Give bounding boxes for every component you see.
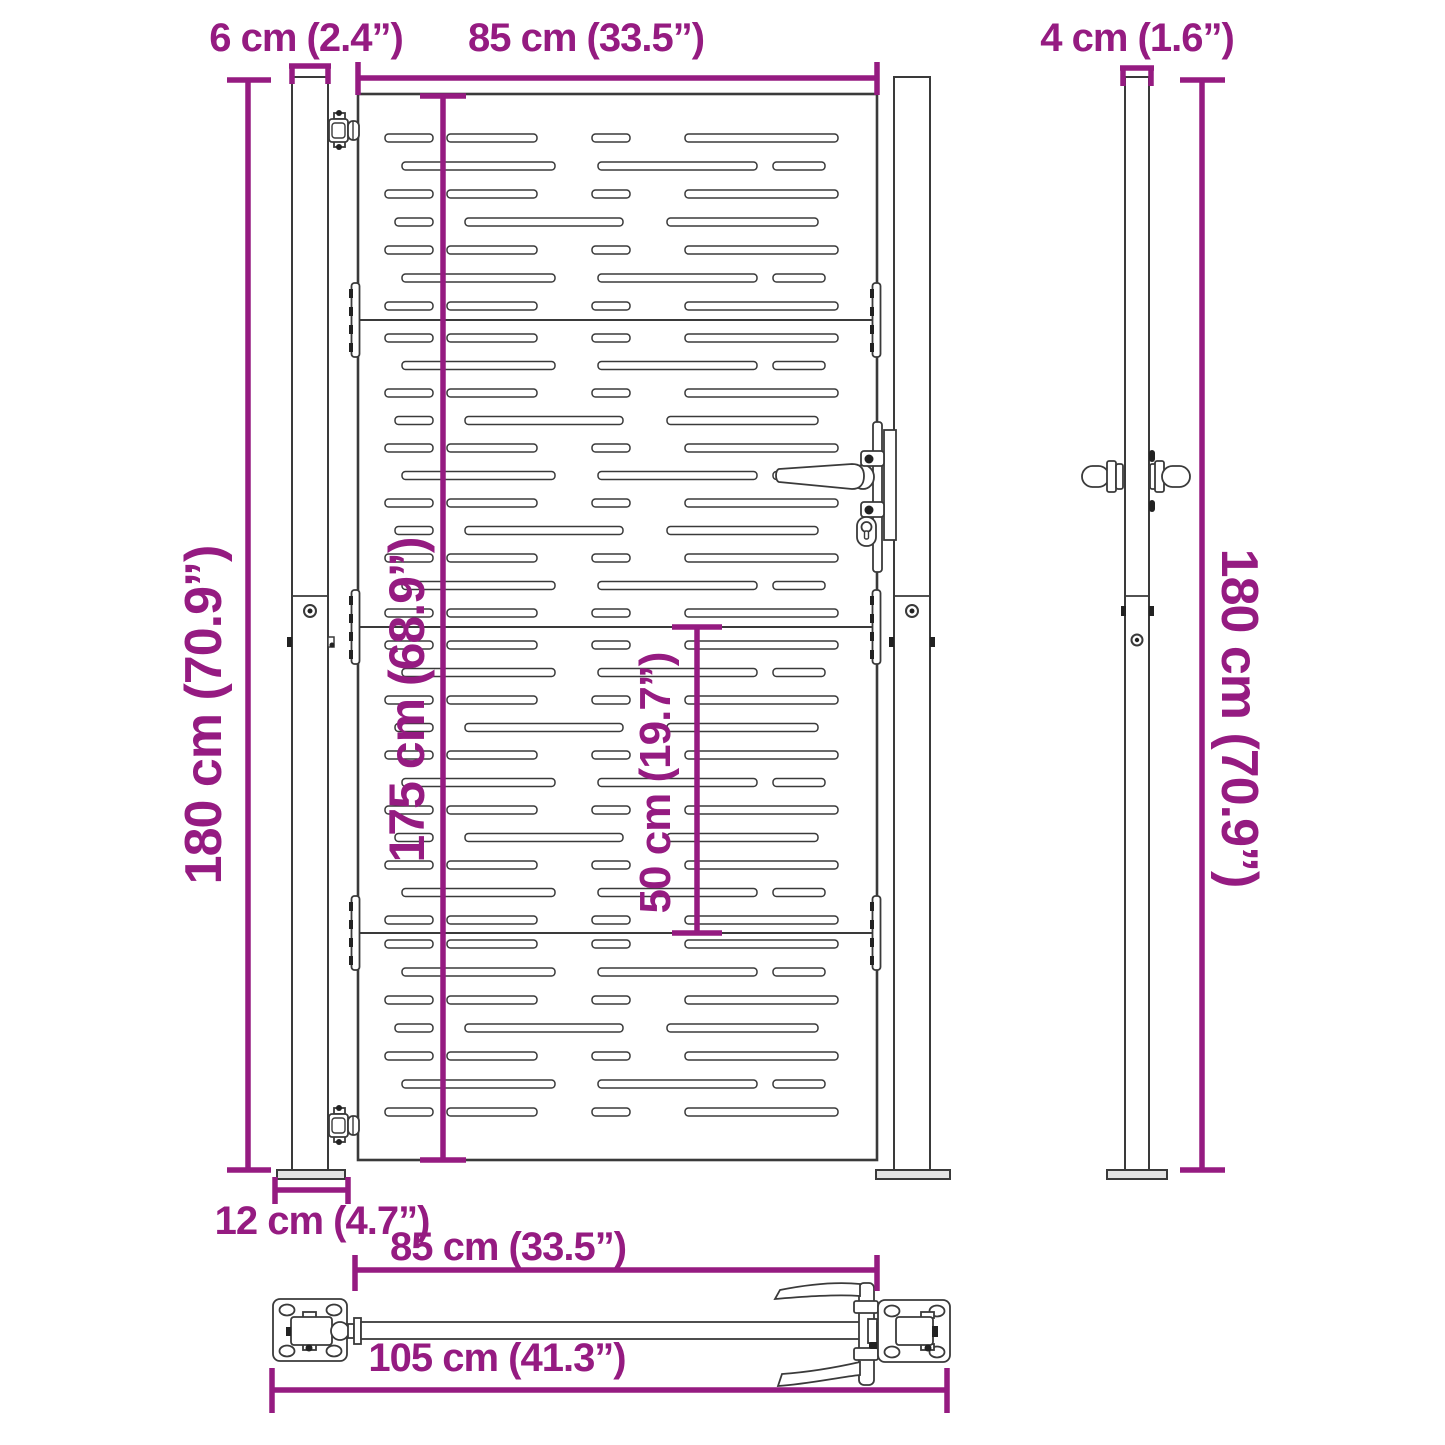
gate-slot bbox=[592, 641, 630, 649]
joint-bar-tab bbox=[870, 596, 874, 605]
side-view bbox=[1082, 77, 1190, 1179]
gate-slot bbox=[447, 334, 537, 342]
gate-slot bbox=[465, 1024, 623, 1032]
gate-slot bbox=[685, 1052, 838, 1060]
gate-slot bbox=[685, 609, 838, 617]
gate-slot bbox=[592, 940, 630, 948]
gate-slot bbox=[447, 1052, 537, 1060]
gate-slot bbox=[592, 1108, 630, 1116]
gate-slot bbox=[592, 334, 630, 342]
gate-slot bbox=[592, 246, 630, 254]
gate-slot bbox=[385, 444, 433, 452]
hinge-knuckle bbox=[331, 1322, 349, 1340]
joint-bar-tab bbox=[870, 956, 874, 965]
gate-slot bbox=[465, 834, 623, 842]
joint-bar-tab bbox=[349, 920, 353, 929]
gate-slot bbox=[447, 996, 537, 1004]
gate-slot bbox=[402, 274, 555, 282]
side-post bbox=[1125, 77, 1149, 1170]
joint-bar-tab bbox=[870, 614, 874, 623]
gate-slot bbox=[592, 806, 630, 814]
joint-bar-tab bbox=[870, 325, 874, 334]
gate-slot bbox=[598, 162, 757, 170]
top-view-right-plate bbox=[878, 1300, 950, 1362]
joint-bar-tab bbox=[870, 920, 874, 929]
gate-slot bbox=[465, 724, 623, 732]
gate-slot bbox=[685, 302, 838, 310]
gate-slot bbox=[592, 996, 630, 1004]
gate-slot bbox=[685, 246, 838, 254]
gate-slot bbox=[385, 302, 433, 310]
gate-slot bbox=[598, 274, 757, 282]
gate-slot bbox=[773, 274, 825, 282]
gate-slot bbox=[592, 916, 630, 924]
gate-slot bbox=[402, 889, 555, 897]
joint-bar-tab bbox=[349, 614, 353, 623]
joint-bar-tab bbox=[870, 650, 874, 659]
joint-bar-tab bbox=[349, 956, 353, 965]
post-width-side-label: 4 cm (1.6”) bbox=[1040, 18, 1234, 58]
gate-slot bbox=[685, 334, 838, 342]
gate-slot bbox=[685, 861, 838, 869]
gate-slot bbox=[385, 916, 433, 924]
gate-slot bbox=[685, 696, 838, 704]
gate-slot bbox=[592, 302, 630, 310]
gate-slot bbox=[667, 218, 818, 226]
gate-slot bbox=[465, 218, 623, 226]
gate-slot bbox=[598, 472, 757, 480]
gate-slot bbox=[402, 1080, 555, 1088]
joint-bar-tab bbox=[870, 289, 874, 298]
top-view-left-plate bbox=[273, 1299, 354, 1361]
dim-post-height-left bbox=[227, 80, 271, 1170]
gate-slot bbox=[685, 751, 838, 759]
joint-bar-tab bbox=[870, 902, 874, 911]
lock-bolt bbox=[1149, 500, 1155, 512]
joint-bar-tab bbox=[870, 343, 874, 352]
gate-slot bbox=[592, 696, 630, 704]
gate-slot bbox=[773, 362, 825, 370]
total-width-label: 105 cm (41.3”) bbox=[368, 1338, 625, 1378]
gate-slot bbox=[667, 1024, 818, 1032]
left-post-base-plate bbox=[277, 1170, 345, 1179]
gate-slot bbox=[447, 134, 537, 142]
gate-slot bbox=[385, 134, 433, 142]
joint-bar-tab bbox=[349, 289, 353, 298]
bottom-hinge bbox=[329, 1105, 359, 1145]
joint-bar-tab bbox=[349, 307, 353, 316]
joint-bar-tab bbox=[870, 938, 874, 947]
gate-slot bbox=[447, 641, 537, 649]
gate-slot bbox=[667, 834, 818, 842]
joint-bar-tab bbox=[349, 650, 353, 659]
joint-bar-tab bbox=[349, 325, 353, 334]
gate-slot bbox=[685, 916, 838, 924]
side-post-base-plate bbox=[1107, 1170, 1167, 1179]
gate-slot bbox=[447, 751, 537, 759]
gate-slot bbox=[598, 968, 757, 976]
gate-slot bbox=[447, 861, 537, 869]
gate-slot bbox=[592, 554, 630, 562]
gate-slot bbox=[685, 499, 838, 507]
gate-slot bbox=[447, 302, 537, 310]
gate-slot bbox=[447, 696, 537, 704]
gate-slot bbox=[685, 940, 838, 948]
post-height-right-label: 180 cm (70.9”) bbox=[1213, 549, 1265, 888]
gate-slot bbox=[773, 669, 825, 677]
gate-height-label: 175 cm (68.9”) bbox=[382, 537, 432, 862]
gate-slot bbox=[773, 889, 825, 897]
gate-slot bbox=[447, 806, 537, 814]
gate-slot bbox=[402, 968, 555, 976]
gate-slot bbox=[385, 940, 433, 948]
gate-slot bbox=[773, 779, 825, 787]
top-hinge bbox=[329, 110, 359, 150]
gate-slot bbox=[667, 527, 818, 535]
gate-slot bbox=[667, 724, 818, 732]
gate-slot bbox=[685, 389, 838, 397]
gate-slot bbox=[385, 1108, 433, 1116]
joint-bar-tab bbox=[870, 632, 874, 641]
gate-slot bbox=[395, 527, 433, 535]
gate-slot bbox=[685, 554, 838, 562]
gate-slot bbox=[592, 609, 630, 617]
gate-slot bbox=[685, 806, 838, 814]
front-view bbox=[277, 77, 950, 1179]
gate-slot bbox=[592, 1052, 630, 1060]
gate-slot bbox=[773, 968, 825, 976]
joint-bar-tab bbox=[349, 632, 353, 641]
joint-bar-tab bbox=[349, 902, 353, 911]
gate-slot bbox=[447, 499, 537, 507]
post-width-front-label: 6 cm (2.4”) bbox=[209, 18, 403, 58]
gate-slot bbox=[592, 389, 630, 397]
gate-slot bbox=[402, 362, 555, 370]
gate-slot bbox=[773, 162, 825, 170]
gate-slot bbox=[402, 162, 555, 170]
gate-slot bbox=[592, 861, 630, 869]
gate-slot bbox=[447, 190, 537, 198]
gate-slot bbox=[773, 582, 825, 590]
gate-slot bbox=[447, 444, 537, 452]
gate-slot bbox=[402, 472, 555, 480]
joint-bar-tab bbox=[349, 343, 353, 352]
gate-slot bbox=[685, 134, 838, 142]
bar-end-cap bbox=[354, 1318, 361, 1344]
gate-slot bbox=[592, 444, 630, 452]
gate-slot bbox=[598, 362, 757, 370]
gate-slot bbox=[385, 996, 433, 1004]
gate-slot bbox=[592, 751, 630, 759]
joint-bar-tab bbox=[349, 596, 353, 605]
joint-bar-tab bbox=[870, 307, 874, 316]
left-post bbox=[277, 77, 345, 1179]
gate-width-bottom-label: 85 cm (33.5”) bbox=[390, 1227, 626, 1267]
gate-slot bbox=[385, 190, 433, 198]
gate-slot bbox=[385, 1052, 433, 1060]
gate-slot bbox=[685, 996, 838, 1004]
gate-slot bbox=[592, 190, 630, 198]
lock-striker-plate bbox=[884, 430, 896, 540]
gate-slot bbox=[447, 246, 537, 254]
gate-slot bbox=[685, 190, 838, 198]
gate-slot bbox=[395, 218, 433, 226]
dim-gate-width-top bbox=[358, 62, 877, 95]
gate-slot bbox=[447, 554, 537, 562]
gate-slot bbox=[447, 1108, 537, 1116]
gate-slot bbox=[447, 940, 537, 948]
gate-slot bbox=[685, 641, 838, 649]
gate-slot bbox=[592, 499, 630, 507]
gate-slot bbox=[465, 417, 623, 425]
gate-slot bbox=[385, 246, 433, 254]
right-post bbox=[876, 77, 950, 1179]
gate-slot bbox=[385, 499, 433, 507]
gate-slot bbox=[465, 527, 623, 535]
lock-bar bbox=[873, 422, 882, 572]
gate-slot bbox=[447, 609, 537, 617]
post-height-left-label: 180 cm (70.9”) bbox=[178, 546, 230, 885]
gate-slot bbox=[598, 582, 757, 590]
gate-slot bbox=[395, 1024, 433, 1032]
gate-dimension-diagram: 6 cm (2.4”) 85 cm (33.5”) 4 cm (1.6”) 18… bbox=[0, 0, 1445, 1445]
gate-slot bbox=[385, 334, 433, 342]
gate-slot bbox=[773, 1080, 825, 1088]
gate-slot bbox=[592, 134, 630, 142]
joint-bar-tab bbox=[349, 938, 353, 947]
gate-slot bbox=[667, 417, 818, 425]
panel-height-label: 50 cm (19.7”) bbox=[634, 653, 678, 914]
gate-width-top-label: 85 cm (33.5”) bbox=[468, 18, 704, 58]
gate-slot bbox=[685, 444, 838, 452]
gate-slot bbox=[447, 916, 537, 924]
lock-bolt bbox=[1149, 450, 1155, 462]
gate-slot bbox=[598, 1080, 757, 1088]
gate-slot bbox=[385, 389, 433, 397]
gate-slot bbox=[685, 1108, 838, 1116]
right-post-base-plate bbox=[876, 1170, 950, 1179]
gate-slot bbox=[447, 389, 537, 397]
gate-slot bbox=[395, 417, 433, 425]
